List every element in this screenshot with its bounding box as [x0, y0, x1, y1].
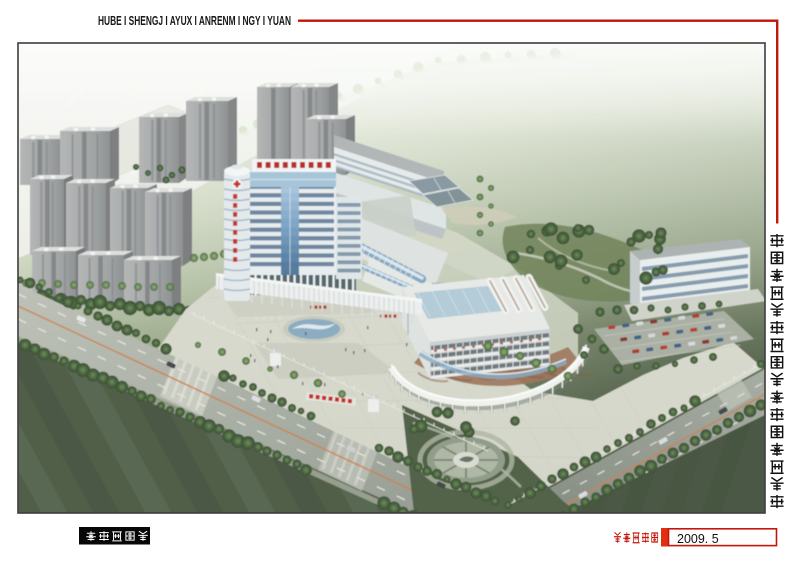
svg-text:2009. 5: 2009. 5	[677, 532, 719, 546]
svg-text:HUBE I SHENGJ I AYUX I ANRENM: HUBE I SHENGJ I AYUX I ANRENM I NGY I YU…	[98, 14, 291, 28]
